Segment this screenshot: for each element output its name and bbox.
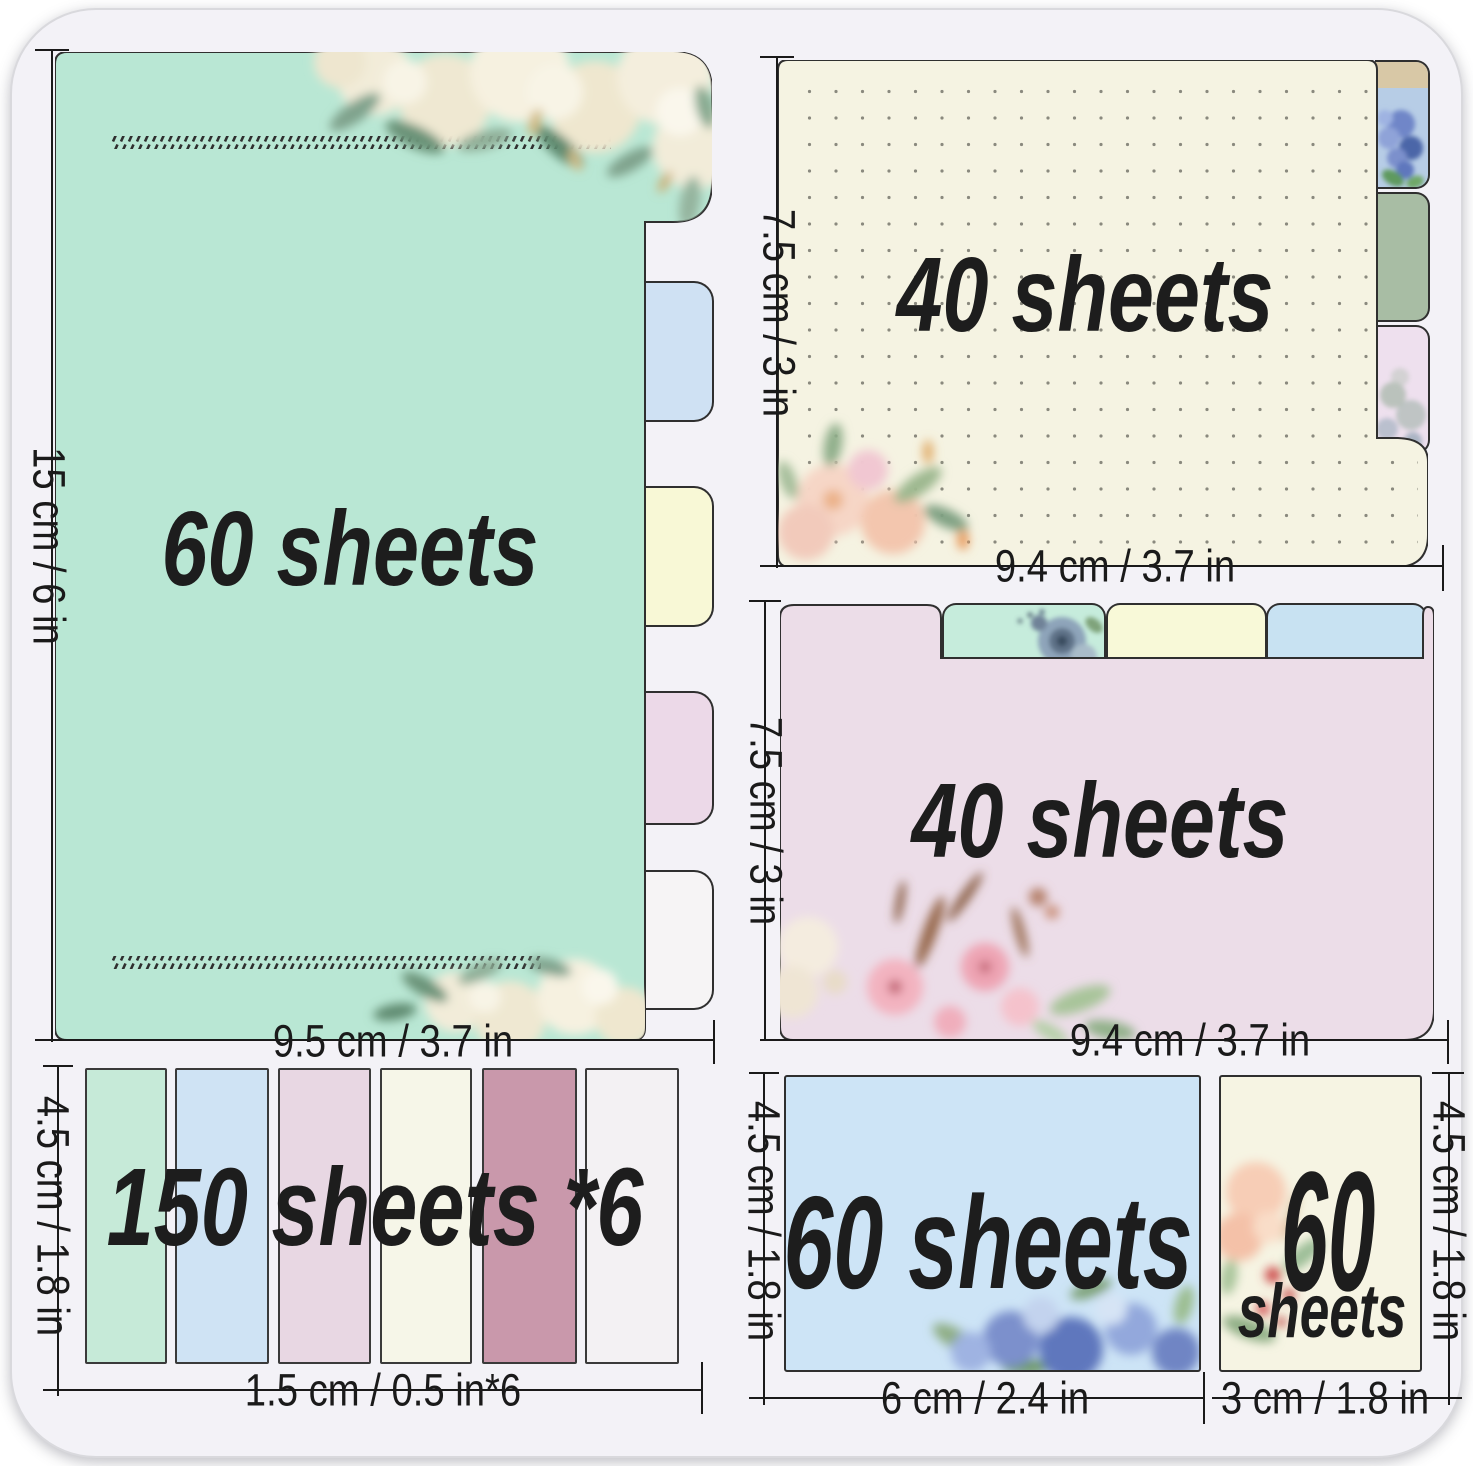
height-dimension-label-mini: 4.5 cm / 1.8 in (1427, 1101, 1472, 1341)
decorative-hatch-line-top (111, 136, 611, 149)
sheet-count-strips: 150 sheets *6 (107, 1153, 644, 1263)
height-dimension-label-strips: 4.5 cm / 1.8 in (31, 1096, 76, 1336)
height-dimension-label-blue: 4.5 cm / 1.8 in (742, 1101, 787, 1341)
width-dimension-label-dotted: 9.4 cm / 3.7 in (995, 544, 1235, 589)
product-dimension-infographic: 15 cm / 6 in 9.5 cm / 3.7 in 7.5 cm / 3 … (0, 0, 1473, 1466)
width-dimension-label-pink: 9.4 cm / 3.7 in (1070, 1018, 1310, 1063)
dimension-tick (749, 600, 781, 602)
sheet-count-mini-word: sheets (1238, 1274, 1407, 1350)
dimension-tick (713, 1020, 715, 1064)
width-dimension-label-mini: 3 cm / 1.8 in (1221, 1376, 1429, 1421)
dimension-tick (760, 56, 794, 58)
sheet-count-lined: 60 sheets (162, 496, 539, 602)
dimension-tick (1447, 1020, 1449, 1064)
dimension-tick (43, 1065, 73, 1067)
sheet-count-dotted: 40 sheets (897, 242, 1274, 348)
height-dimension-label-pink: 7.5 cm / 3 in (744, 717, 789, 925)
dimension-tick (1442, 545, 1444, 591)
sheet-count-pink: 40 sheets (912, 768, 1289, 874)
dimension-tick (749, 1072, 779, 1074)
height-dimension-label-lined: 15 cm / 6 in (27, 447, 72, 645)
dimension-tick (1432, 1072, 1464, 1074)
dimension-tick (1203, 1372, 1205, 1424)
width-dimension-label-blue: 6 cm / 2.4 in (881, 1376, 1089, 1421)
sheet-count-blue: 60 sheets (783, 1177, 1192, 1309)
height-dimension-label-dotted: 7.5 cm / 3 in (757, 209, 802, 417)
dimension-tick (35, 49, 69, 51)
width-dimension-label-strips: 1.5 cm / 0.5 in*6 (245, 1368, 521, 1413)
dimension-tick (701, 1362, 703, 1414)
width-dimension-label-lined: 9.5 cm / 3.7 in (273, 1019, 513, 1064)
